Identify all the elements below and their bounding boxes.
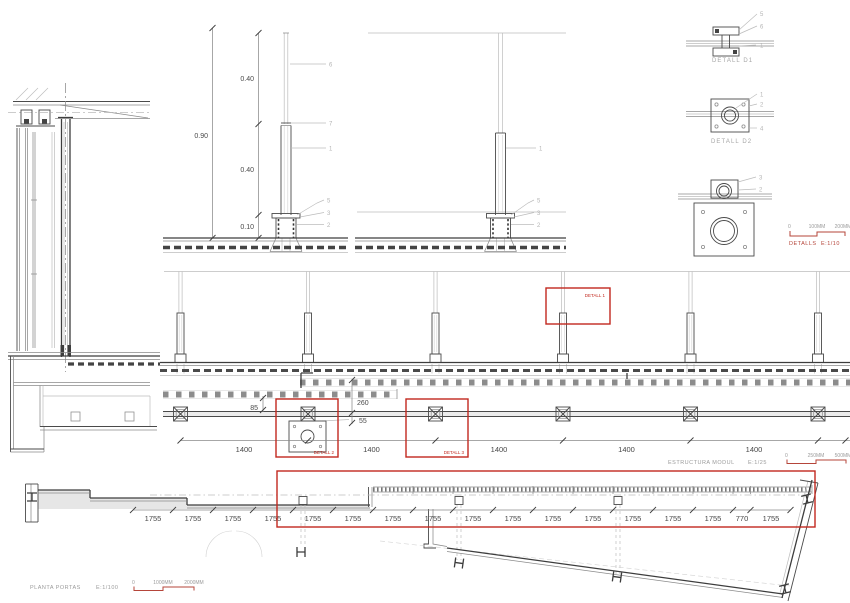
bay-dim: 1400 <box>618 445 635 454</box>
scale-zero: 0 <box>788 224 791 230</box>
railing-post <box>813 272 824 374</box>
railing-post <box>685 272 696 374</box>
railing-post <box>303 272 314 374</box>
callout-d1-1: 5 <box>760 12 764 18</box>
dim-edge: 55 <box>359 418 367 425</box>
detail-3-highlight-box <box>406 399 468 457</box>
dim-offset: 85 <box>250 405 258 412</box>
bay-dim: 1755 <box>763 514 780 523</box>
bay-dim: 1755 <box>465 514 482 523</box>
callout-sleeve: 5 <box>327 199 331 205</box>
details-caption: DETALLS <box>789 241 817 247</box>
detail-1-box-label: DETALL 1 <box>585 293 606 298</box>
floor-plan-ratio: E:1/100 <box>96 585 118 591</box>
steel-column-icon <box>297 547 305 557</box>
bay-dim: 1755 <box>665 514 682 523</box>
callout-anchor: 2 <box>537 223 541 229</box>
railing-post <box>175 272 186 374</box>
detail-d2-label: DETALL D2 <box>711 139 752 145</box>
steel-column-icon <box>27 493 37 501</box>
scale-end: 500MM <box>835 453 850 459</box>
callout-post: 1 <box>539 147 543 153</box>
railing-elevation: DETALL 1 <box>160 272 850 376</box>
callout-d3-1: 3 <box>759 176 763 182</box>
scale-zero: 0 <box>785 453 788 459</box>
bay-dim: 1755 <box>145 514 162 523</box>
bay-dim: 1755 <box>705 514 722 523</box>
callout-sleeve: 5 <box>537 199 541 205</box>
callout-rod: 6 <box>329 63 333 69</box>
details-scale-bar: 0 100MM 200MM DETALLS E:1/10 <box>788 224 850 247</box>
scale-bar-icon <box>134 587 194 591</box>
bay-dim: 1755 <box>625 514 642 523</box>
scale-bar-icon <box>787 460 846 464</box>
detail-d1-label: DETALL D1 <box>712 58 753 64</box>
module-plan-ratio: E:1/25 <box>748 460 767 466</box>
bay-dim: 1400 <box>746 445 763 454</box>
floor-plan: 1755 1755 1755 1755 1755 1755 1755 1755 … <box>26 471 819 601</box>
railing-post <box>430 272 441 374</box>
scale-mid: 1000MM <box>153 580 172 586</box>
callout-d1-3: 1 <box>760 44 764 50</box>
bay-dim: 1755 <box>425 514 442 523</box>
scale-zero: 0 <box>132 580 135 586</box>
dim-overall-height: 0.90 <box>194 133 208 140</box>
dim-depth: 260 <box>357 400 369 407</box>
detail-3-box-label: DETALL 3 <box>444 450 465 455</box>
module-plan-caption: ESTRUCTURA MODUL <box>668 460 735 466</box>
wall-door-section <box>8 83 160 452</box>
bay-dim: 1755 <box>505 514 522 523</box>
bay-dim: 1400 <box>491 445 508 454</box>
dim-post-height: 0.40 <box>240 167 254 174</box>
scale-mid: 250MM <box>808 453 825 459</box>
scale-bar-icon <box>790 231 845 236</box>
callout-d2-3: 4 <box>760 127 764 133</box>
detail-2-box-label: DETALL 2 <box>314 450 335 455</box>
bay-dim: 1755 <box>225 514 242 523</box>
baluster-section-detail-b: 1 5 3 2 <box>355 33 566 253</box>
floor-plan-caption: PLANTA PORTAS <box>30 585 81 591</box>
callout-d2-2: 2 <box>760 103 764 109</box>
callout-post: 1 <box>329 147 333 153</box>
bay-dim: 1755 <box>345 514 362 523</box>
bay-dim: 1755 <box>585 514 602 523</box>
detail-2-highlight-box <box>276 399 338 457</box>
detail-d1: 5 6 1 DETALL D1 <box>686 12 774 64</box>
module-plan: 85 260 55 1400 1400 1400 1400 1400 DETAL… <box>163 373 850 466</box>
bay-dim: 1755 <box>265 514 282 523</box>
railing-post <box>558 272 569 374</box>
scale-mid: 100MM <box>809 224 826 230</box>
steel-column-icon <box>454 557 463 568</box>
bay-dim: 1755 <box>305 514 322 523</box>
dim-base-height: 0.10 <box>240 224 254 231</box>
scale-end: 2000MM <box>184 580 203 586</box>
callout-anchor: 2 <box>327 223 331 229</box>
callout-d1-2: 6 <box>760 25 764 31</box>
bay-dim: 1755 <box>385 514 402 523</box>
bay-dim: 1400 <box>236 445 253 454</box>
dim-rod-height: 0.40 <box>240 76 254 83</box>
bay-dim: 1755 <box>545 514 562 523</box>
base-plate-detail: 3 2 <box>678 176 772 257</box>
baluster-section-detail-a: 0.90 0.40 0.40 0.10 6 7 1 5 3 2 <box>163 25 348 253</box>
detail-d2: 1 2 4 DETALL D2 <box>686 93 774 146</box>
details-ratio: E:1/10 <box>821 241 840 247</box>
callout-d3-2: 2 <box>759 188 763 194</box>
bay-dim: 770 <box>736 514 749 523</box>
callout-d2-1: 1 <box>760 93 764 99</box>
callout-joint: 7 <box>329 122 333 128</box>
scale-end: 200MM <box>835 224 850 230</box>
bay-dim: 1400 <box>363 445 380 454</box>
bay-dim: 1755 <box>185 514 202 523</box>
cad-drawing-sheet: 0.90 0.40 0.40 0.10 6 7 1 5 3 2 <box>0 0 850 603</box>
callout-plate: 3 <box>327 211 331 217</box>
